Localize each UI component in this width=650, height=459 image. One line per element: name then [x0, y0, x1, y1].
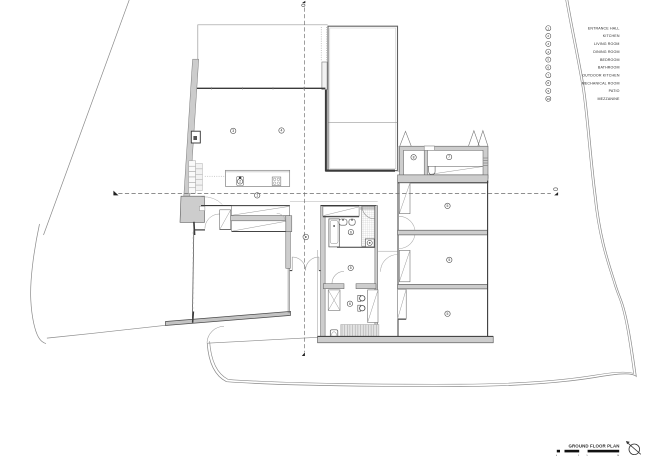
svg-text:MECHANICAL ROOM: MECHANICAL ROOM [582, 81, 620, 85]
svg-text:0: 0 [556, 455, 557, 457]
svg-text:PATIO: PATIO [609, 89, 620, 93]
svg-text:1: 1 [256, 194, 258, 198]
svg-text:1: 1 [547, 26, 549, 30]
svg-text:6: 6 [349, 302, 351, 306]
svg-text:OUTDOOR KITCHEN: OUTDOOR KITCHEN [582, 73, 620, 77]
svg-text:5: 5 [447, 312, 449, 316]
svg-text:7: 7 [448, 155, 450, 159]
svg-text:8: 8 [547, 81, 549, 85]
svg-text:ENTRANCE HALL: ENTRANCE HALL [588, 26, 620, 30]
svg-text:5: 5 [447, 204, 449, 208]
svg-text:BEDROOM: BEDROOM [600, 58, 620, 62]
svg-text:8: 8 [413, 155, 415, 159]
svg-text:4: 4 [547, 50, 549, 54]
svg-text:7: 7 [547, 73, 549, 77]
svg-text:5: 5 [547, 58, 549, 62]
svg-text:6: 6 [547, 66, 549, 70]
svg-text:BATHROOM: BATHROOM [598, 66, 620, 70]
svg-text:GROUND FLOOR PLAN: GROUND FLOOR PLAN [569, 443, 620, 448]
svg-text:10: 10 [617, 455, 619, 457]
svg-text:10: 10 [547, 97, 551, 101]
svg-text:3: 3 [547, 42, 549, 46]
svg-text:DINING ROOM: DINING ROOM [593, 50, 619, 54]
svg-text:4: 4 [281, 129, 283, 133]
svg-text:2: 2 [239, 180, 241, 184]
svg-text:5: 5 [587, 455, 588, 457]
svg-text:5: 5 [350, 266, 352, 270]
svg-text:MEZZANINE: MEZZANINE [597, 97, 620, 101]
svg-text:6: 6 [350, 230, 352, 234]
svg-text:5: 5 [448, 258, 450, 262]
svg-text:LIVING ROOM: LIVING ROOM [594, 42, 620, 46]
svg-text:2: 2 [578, 455, 579, 457]
svg-text:9: 9 [547, 89, 549, 93]
svg-text:2: 2 [547, 34, 549, 38]
svg-text:KITCHEN: KITCHEN [603, 34, 620, 38]
svg-text:3: 3 [232, 129, 234, 133]
